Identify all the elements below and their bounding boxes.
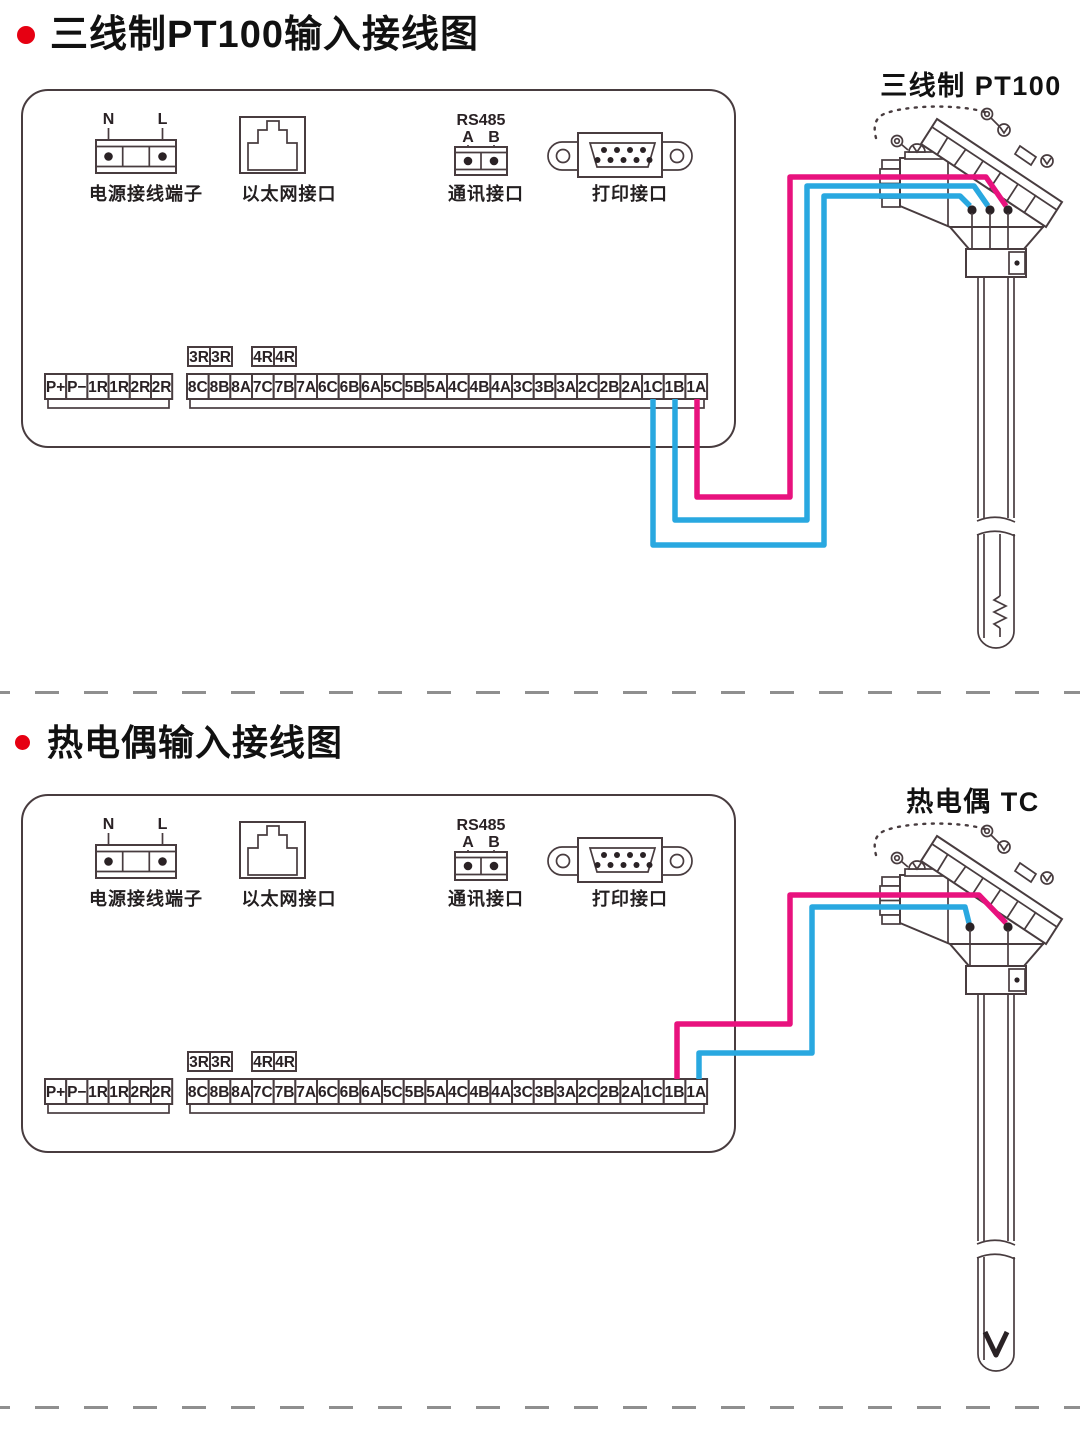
terminal-cell-label: 2B bbox=[600, 379, 620, 396]
terminal-cell-label: 4A bbox=[491, 379, 511, 396]
terminal-cell-label: 7C bbox=[253, 379, 273, 396]
terminal-cell-label: 7A bbox=[296, 379, 316, 396]
power-pin-dot bbox=[158, 152, 167, 161]
terminal-cell-label: 2R bbox=[130, 379, 150, 396]
terminal-cell-label: 4R bbox=[253, 349, 273, 366]
terminal-strip-right: 8C8B8A7C7B7A6C6B6A5C5B5A4C4B4A3C3B3A2C2B… bbox=[187, 374, 707, 399]
rs485-header: RS485 bbox=[457, 112, 506, 129]
wiring-diagram-page: 三线制PT100输入接线图 热电偶输入接线图 N L 电源接线端子 bbox=[0, 0, 1080, 1441]
terminal-cell-label: 4C bbox=[448, 379, 468, 396]
terminal-cell-label: 1R bbox=[88, 379, 108, 396]
terminal-cell-label: 8B bbox=[210, 379, 230, 396]
terminal-cell-label: 5B bbox=[405, 379, 425, 396]
terminal-cell-label: 2C bbox=[578, 379, 598, 396]
mount-hole bbox=[671, 150, 684, 163]
device-panel-2 bbox=[22, 795, 735, 1152]
pin-n-label: N bbox=[103, 111, 115, 128]
terminal-cell-label: 6C bbox=[318, 379, 338, 396]
device-panel: N L 电源接线端子 以太网接口 RS485 bbox=[22, 90, 735, 447]
probe-tube-pt100 bbox=[977, 277, 1015, 648]
sensor-1-caption: 三线制 PT100 bbox=[880, 71, 1062, 101]
terminal-cell-label: 4B bbox=[470, 379, 490, 396]
terminal-cell-label: P+ bbox=[46, 379, 65, 396]
terminal-cell-label: 1C bbox=[643, 379, 663, 396]
terminal-cell-label: 1A bbox=[686, 379, 706, 396]
terminal-cell-label: 7B bbox=[275, 379, 295, 396]
chain-ring-icon bbox=[982, 109, 993, 120]
terminal-strip-left: P+P−1R1R2R2R bbox=[45, 374, 172, 399]
tc-junction-icon bbox=[985, 1332, 1007, 1355]
terminal-cell-label: 1B bbox=[665, 379, 685, 396]
rs485-port-label: 通讯接口 bbox=[448, 183, 524, 204]
pin-b-label: B bbox=[488, 129, 500, 146]
terminal-cell-label: 3R bbox=[189, 349, 209, 366]
sensor-2-caption: 热电偶 TC bbox=[906, 787, 1040, 817]
terminal-cell-label: 8C bbox=[188, 379, 208, 396]
pin-l-label: L bbox=[158, 111, 168, 128]
terminal-cell-label: 3A bbox=[556, 379, 576, 396]
rtd-element-icon bbox=[994, 534, 1006, 637]
pin-a-label: A bbox=[462, 129, 474, 146]
head-funnel bbox=[950, 227, 1043, 249]
power-terminal-label: 电源接线端子 bbox=[89, 183, 203, 204]
rs485-pin-dot bbox=[490, 157, 499, 166]
mount-hole bbox=[557, 150, 570, 163]
terminal-cell-label: 3B bbox=[535, 379, 555, 396]
terminal-cell-label: 3R bbox=[211, 349, 231, 366]
terminal-cell-label: 4R bbox=[275, 349, 295, 366]
sensor-head bbox=[875, 107, 1062, 277]
terminal-cell-label: 6A bbox=[361, 379, 381, 396]
rs485-pin-dot bbox=[464, 157, 473, 166]
terminal-cell-label: 2A bbox=[621, 379, 641, 396]
terminal-cell-label: P− bbox=[67, 379, 86, 396]
terminal-cell-label: 6B bbox=[340, 379, 360, 396]
db9-icon bbox=[590, 143, 655, 167]
terminal-cell-label: 3C bbox=[513, 379, 533, 396]
ethernet-port-label: 以太网接口 bbox=[242, 183, 337, 204]
diagram-art: N L 电源接线端子 以太网接口 RS485 bbox=[0, 0, 1080, 1441]
terminal-cell-label: 8A bbox=[231, 379, 251, 396]
printer-port-label: 打印接口 bbox=[592, 183, 668, 204]
power-pin-dot bbox=[104, 152, 113, 161]
terminal-cell-label: 5A bbox=[426, 379, 446, 396]
terminal-cell-label: 2R bbox=[152, 379, 172, 396]
terminal-cell-label: 5C bbox=[383, 379, 403, 396]
terminal-cell-label: 1R bbox=[109, 379, 129, 396]
probe-tube-tc bbox=[977, 994, 1015, 1371]
